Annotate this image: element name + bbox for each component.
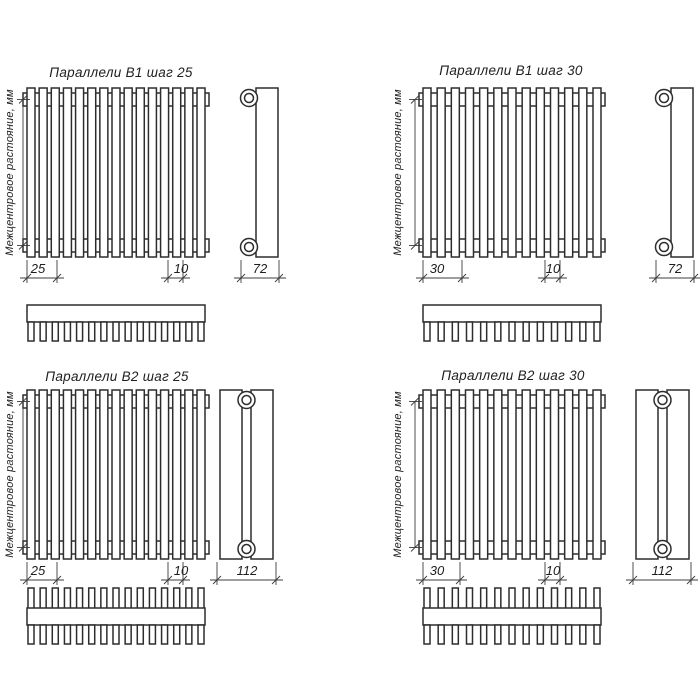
radiator-side-view: [636, 390, 689, 559]
tube-dimension-value: 10: [174, 563, 189, 578]
step-dimension-value: 25: [30, 563, 46, 578]
tube-dimension-value: 10: [546, 261, 561, 276]
center-distance-label: Межцентровое растояние, мм: [4, 89, 16, 256]
panel-title: Параллели В1 шаг 30: [439, 63, 583, 78]
center-distance-dimension: [409, 398, 422, 552]
center-distance-label: Межцентровое растояние, мм: [392, 89, 404, 256]
technical-drawing-sheet: Параллели В1 шаг 25 Межцентровое растоян…: [0, 0, 700, 700]
radiator-side-view: [220, 390, 273, 559]
radiator-top-view: [423, 588, 601, 644]
panel-title: Параллели В1 шаг 25: [49, 65, 193, 80]
panel-b2-25: [17, 390, 283, 644]
radiator-top-view: [27, 588, 205, 644]
depth-dimension-value: 72: [668, 261, 683, 276]
panel-title: Параллели В2 шаг 25: [45, 369, 189, 384]
panel-b1-30: [409, 88, 700, 341]
depth-dimension-value: 112: [652, 563, 673, 578]
radiator-front-view: [419, 390, 605, 559]
step-dimension-value: 30: [430, 563, 445, 578]
radiator-drawing: Параллели В1 шаг 25 Межцентровое растоян…: [0, 0, 700, 700]
center-distance-dimension: [409, 96, 422, 250]
radiator-top-view: [27, 305, 205, 341]
center-distance-label: Межцентровое растояние, мм: [392, 391, 404, 558]
depth-dimension-value: 112: [237, 563, 258, 578]
radiator-front-view: [419, 88, 605, 257]
tube-dimension-value: 10: [174, 261, 189, 276]
tube-dimension-value: 10: [546, 563, 561, 578]
center-distance-label: Межцентровое растояние, мм: [4, 391, 16, 558]
depth-dimension-value: 72: [253, 261, 268, 276]
radiator-front-view: [23, 88, 209, 257]
radiator-front-view: [23, 390, 209, 559]
radiator-top-view: [423, 305, 601, 341]
step-dimension-value: 30: [430, 261, 445, 276]
radiator-side-view: [656, 88, 694, 257]
step-dimension-value: 25: [30, 261, 46, 276]
dimension-lines: [20, 260, 286, 283]
panel-title: Параллели В2 шаг 30: [441, 368, 585, 383]
panel-b1-25: [17, 88, 286, 341]
drawing-linework: [17, 88, 700, 644]
radiator-side-view: [241, 88, 279, 257]
panel-b2-30: [409, 390, 698, 644]
